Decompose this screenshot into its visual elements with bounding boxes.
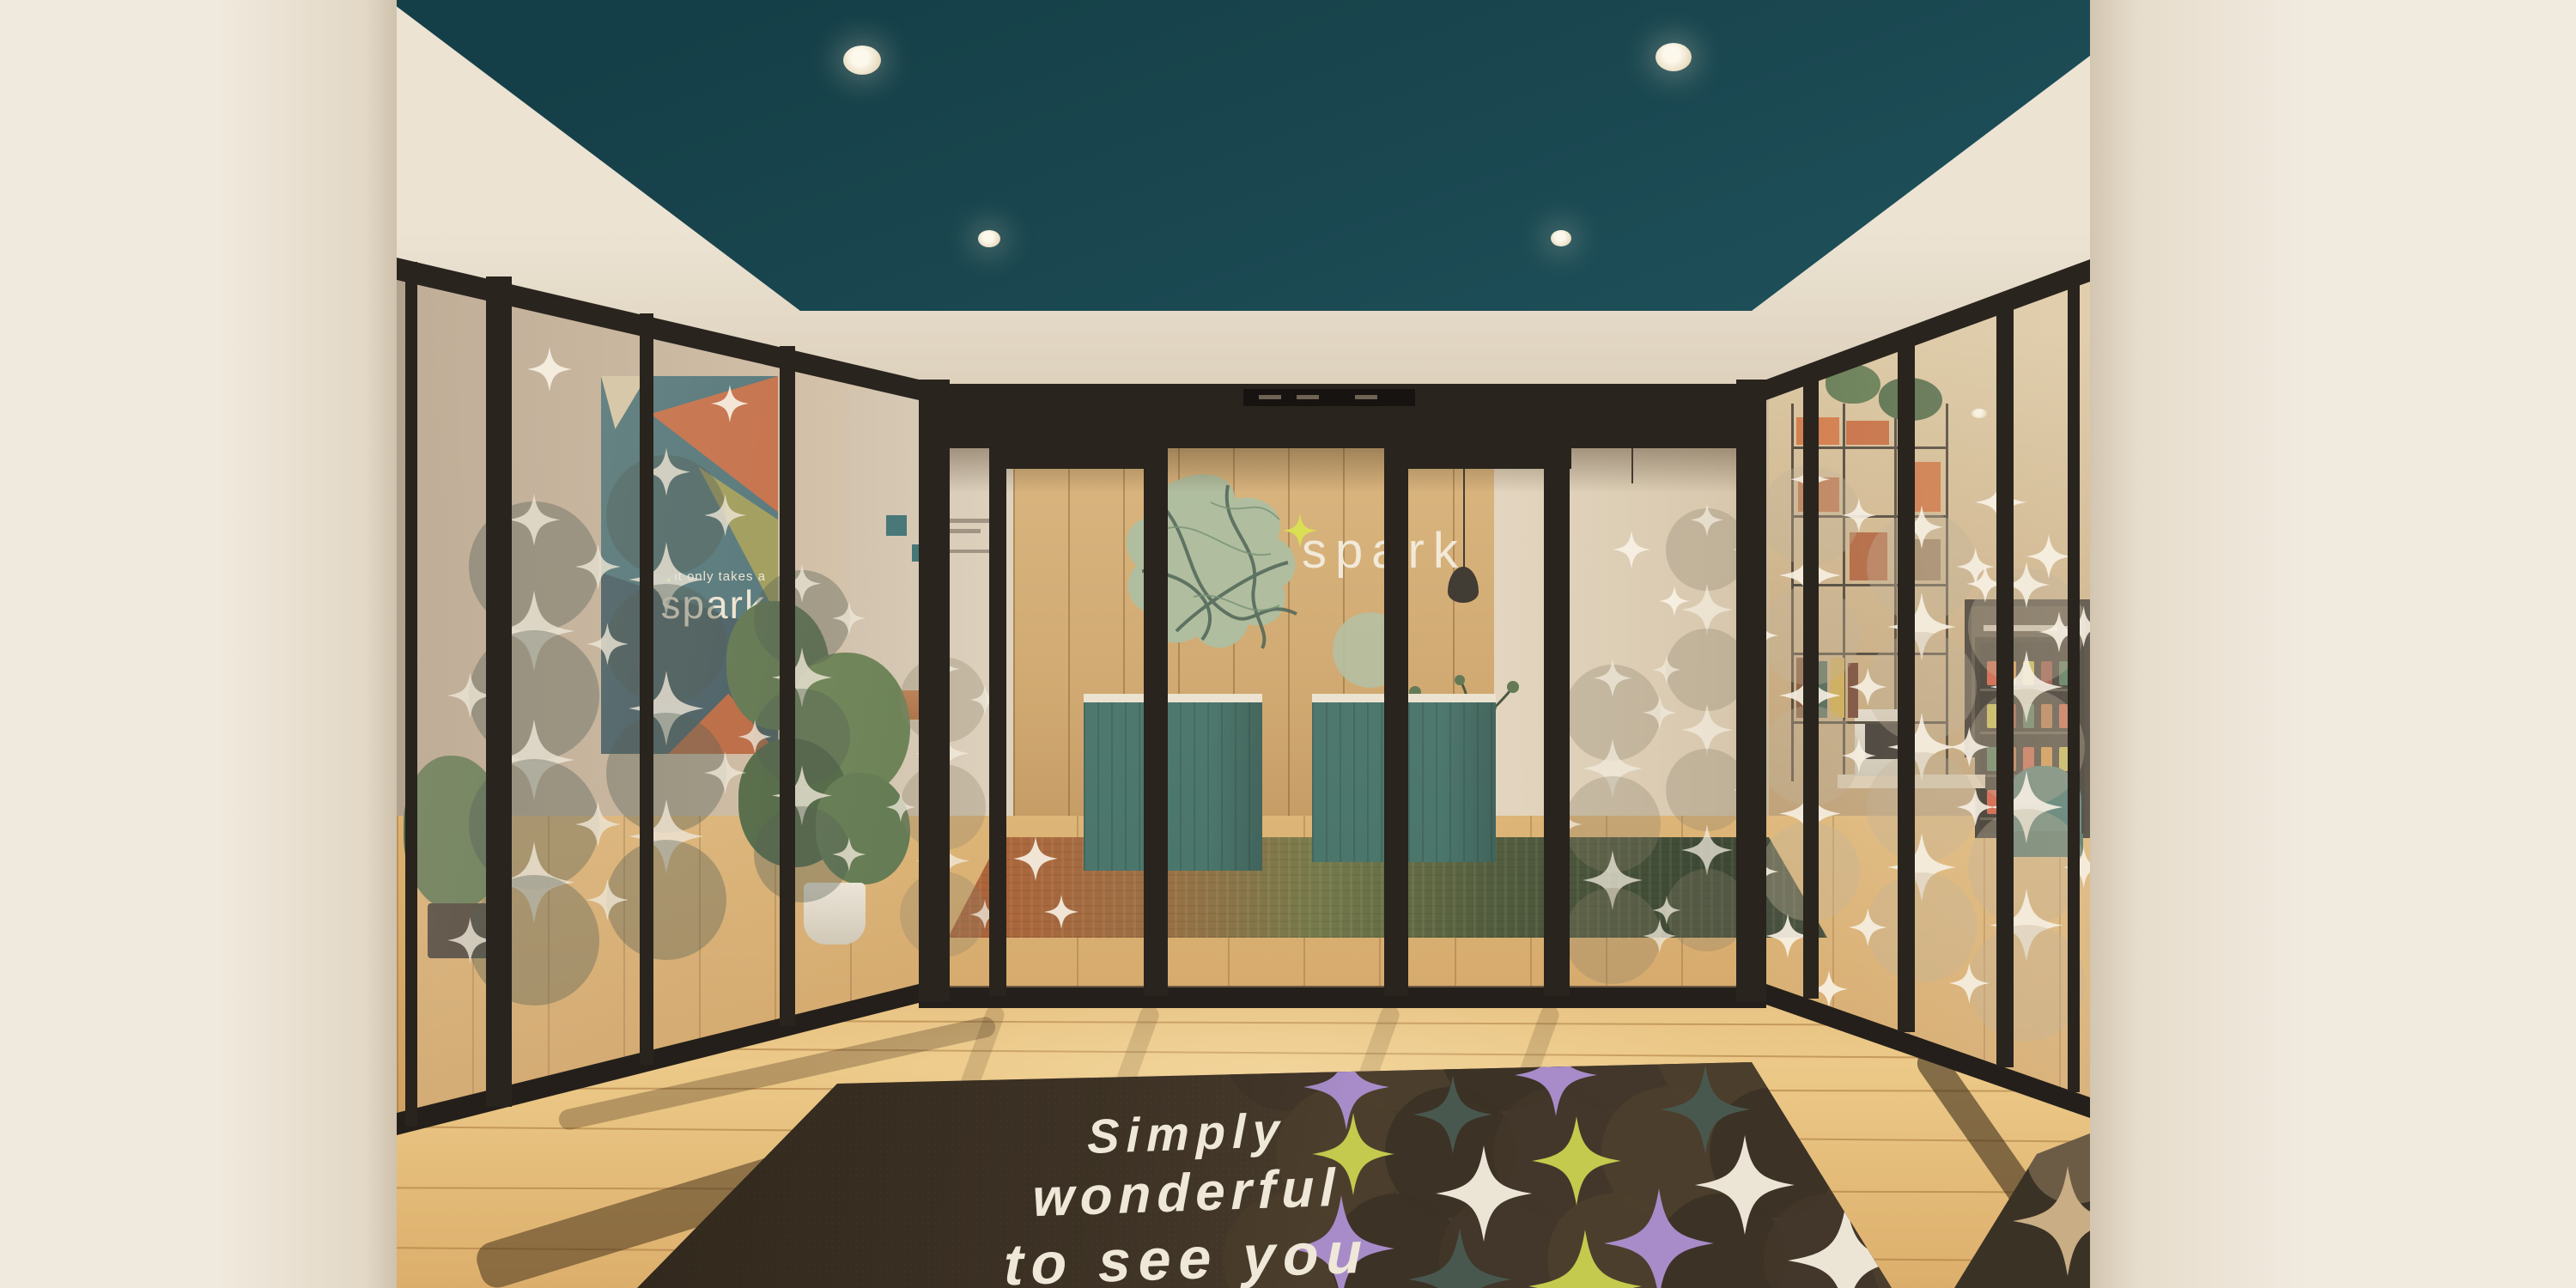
shelf-merchandise (1831, 658, 1844, 718)
shelf-upright (1843, 404, 1845, 781)
operator-label (1297, 395, 1319, 399)
glass-mullion (919, 380, 950, 1001)
fridge-shelf (1980, 732, 2075, 734)
door-threshold-track (919, 986, 1766, 1008)
shelf-upright (1791, 404, 1794, 781)
glass-mullion (1803, 378, 1819, 999)
operator-label (1355, 395, 1377, 399)
interior-downlight (1971, 409, 1987, 418)
sign-text-line (1984, 625, 2057, 631)
shelf-merchandise (1850, 532, 1887, 580)
fridge-item (2041, 661, 2052, 685)
fridge-item (2023, 661, 2034, 685)
glass-mullion (1384, 447, 1408, 996)
ceiling-downlight (978, 230, 1000, 247)
ceiling-downlight (1656, 43, 1692, 71)
reception-desk-left (1084, 702, 1262, 871)
plant-pot (804, 883, 866, 945)
glass-mullion (780, 346, 795, 1026)
spark-diamond-icon (659, 570, 670, 581)
glass-mullion (1544, 447, 1570, 996)
shelf-upright (1946, 404, 1948, 781)
welcome-message: Simply wonderful to see you (938, 1097, 1436, 1288)
wall-signage-tile (886, 515, 907, 536)
glass-mullion (2068, 282, 2080, 1092)
shelf-merchandise (1848, 663, 1858, 718)
glass-mullion (989, 447, 1006, 996)
exterior-wall-left (0, 0, 397, 1288)
exterior-wall-right (2090, 0, 2576, 1288)
vestibule-scene: spark it only takes a spark (0, 0, 2576, 1288)
glass-mullion (486, 276, 512, 1107)
glass-mullion (1898, 343, 1915, 1032)
ceiling-downlight (843, 46, 881, 75)
glass-mullion (1996, 307, 2014, 1067)
glass-mullion (640, 313, 653, 1065)
automatic-door-operator (1243, 389, 1415, 406)
glass-mullion (1736, 380, 1766, 1001)
ceiling-downlight (1551, 230, 1571, 246)
operator-label (1259, 395, 1281, 399)
planter-box (428, 903, 493, 958)
fridge-shelf (1980, 689, 2075, 691)
glass-mullion (405, 262, 417, 1127)
shelf-merchandise (1846, 421, 1889, 445)
fridge-item (2041, 704, 2052, 728)
fridge-item (2023, 704, 2034, 728)
door-leaf-top-rail (989, 448, 1168, 469)
plant-foliage (816, 773, 910, 884)
glass-mullion (1144, 447, 1168, 996)
